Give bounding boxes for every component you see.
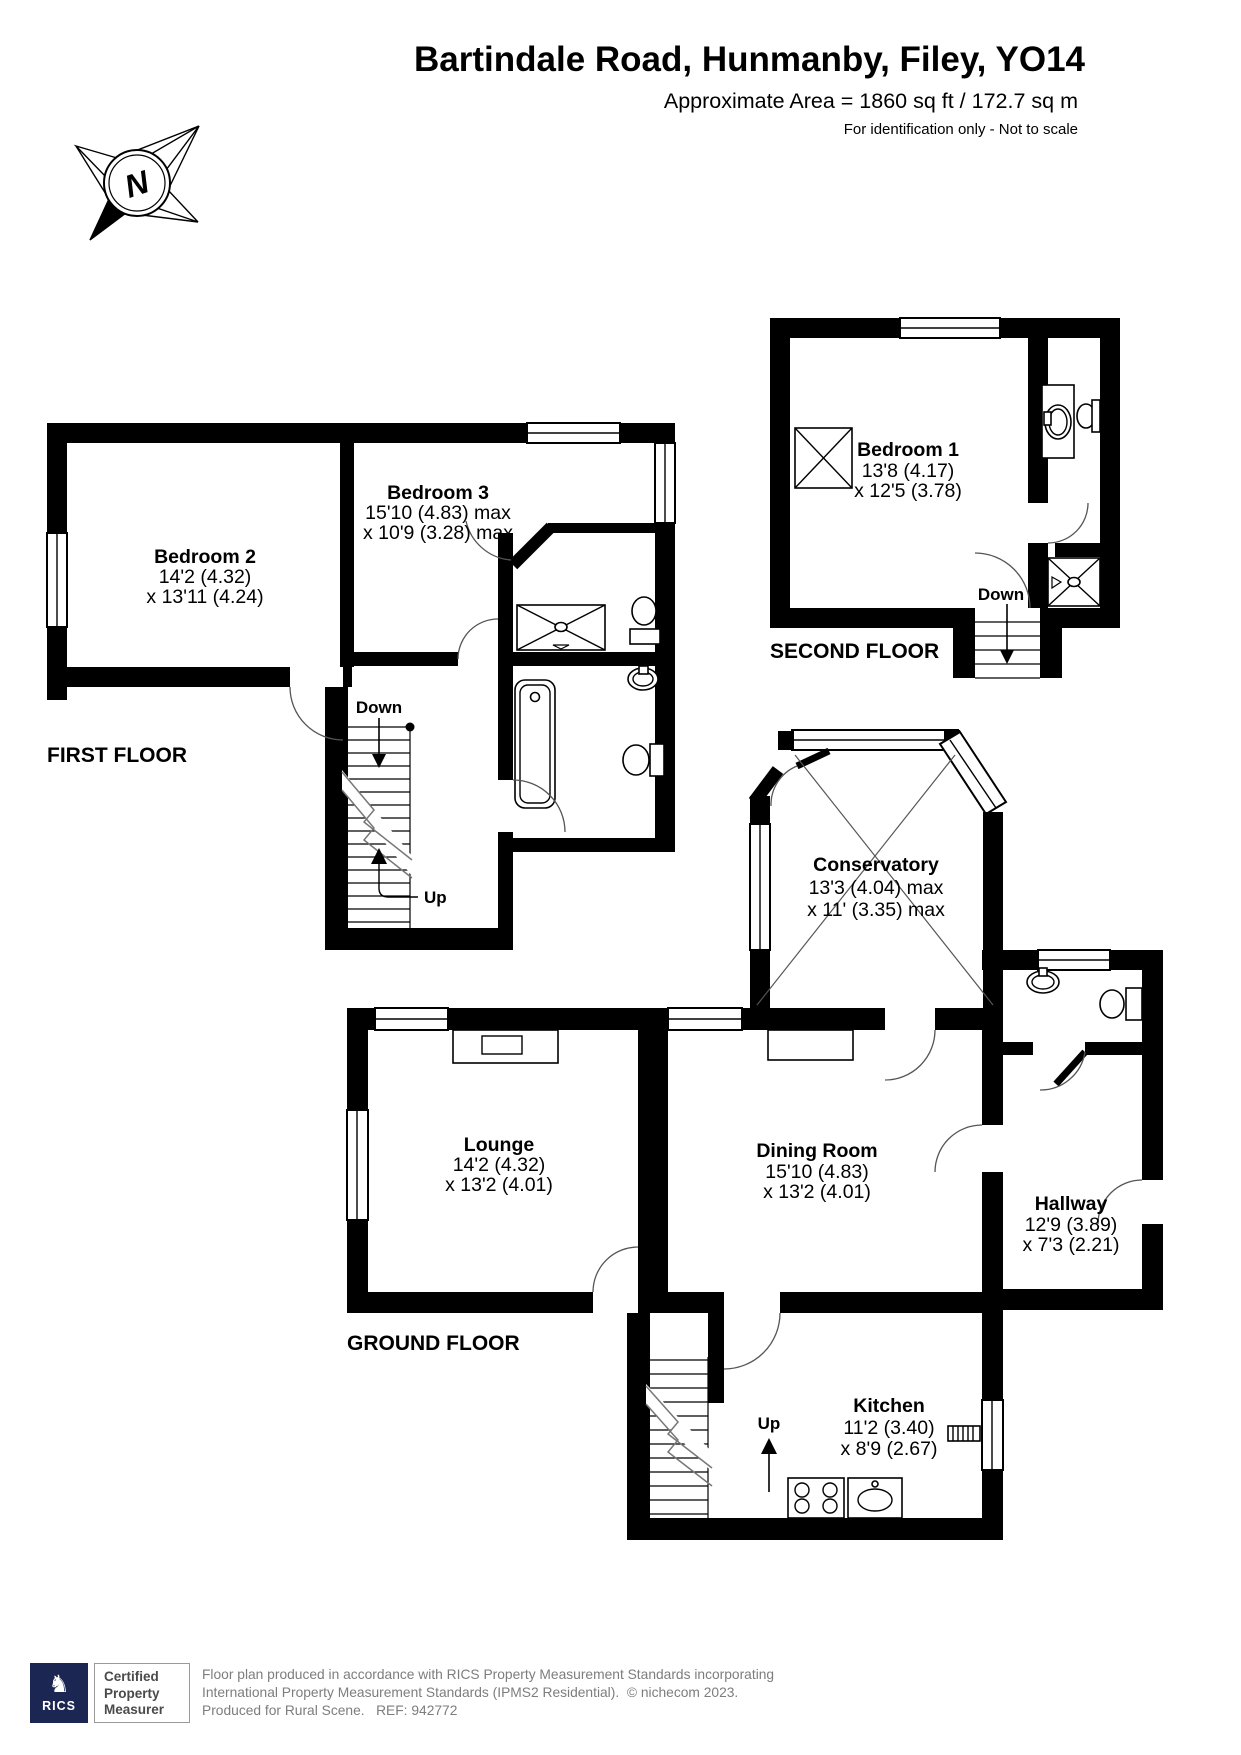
bathroom-sink-icon-2: [628, 666, 658, 690]
first-floor-label: FIRST FLOOR: [47, 744, 187, 767]
room-dim2-lounge: x 13'2 (4.01): [445, 1174, 553, 1196]
skylight-icon: [795, 428, 852, 488]
floorplan-canvas: N: [0, 0, 1241, 1755]
bath-icon: [515, 680, 555, 808]
room-dim2-hallway: x 7'3 (2.21): [1023, 1234, 1120, 1256]
bathroom-sink-icon: [1042, 385, 1074, 458]
room-dim2-kitchen: x 8'9 (2.67): [841, 1438, 938, 1460]
room-dim1-bedroom-2: 14'2 (4.32): [159, 566, 252, 588]
dining-fireplace-icon: [768, 1030, 853, 1060]
room-label-lounge: Lounge: [464, 1134, 535, 1156]
kitchen-radiator-icon: [948, 1426, 980, 1441]
footer-disclaimer-text: Floor plan produced in accordance with R…: [202, 1666, 774, 1720]
room-label-hallway: Hallway: [1035, 1193, 1108, 1215]
room-label-dining-room: Dining Room: [756, 1140, 877, 1162]
toilet-icon: [1077, 400, 1100, 432]
room-label-conservatory: Conservatory: [813, 854, 939, 876]
room-dim1-conservatory: 13'3 (4.04) max: [809, 877, 944, 899]
certified-property-measurer-badge: Certified Property Measurer: [94, 1663, 190, 1723]
footer-line-3: Produced for Rural Scene. REF: 942772: [202, 1702, 774, 1720]
room-dim2-dining-room: x 13'2 (4.01): [763, 1181, 871, 1203]
room-dim1-lounge: 14'2 (4.32): [453, 1154, 546, 1176]
kitchen-sink-icon: [848, 1478, 902, 1518]
rics-lion-icon: ♞: [48, 1673, 70, 1697]
compass-rose-icon: N: [76, 126, 199, 240]
bathroom-toilet-icon: [623, 744, 664, 776]
wc-toilet-icon: [1100, 988, 1142, 1020]
ground-floor-label: GROUND FLOOR: [347, 1332, 520, 1355]
room-dim1-hallway: 12'9 (3.89): [1025, 1214, 1118, 1236]
second-floor-plan: Bedroom 1 13'8 (4.17) x 12'5 (3.78) Down…: [770, 318, 1120, 678]
stairs-down-label-second: Down: [978, 585, 1024, 604]
floorplan-page: Bartindale Road, Hunmanby, Filey, YO14 A…: [0, 0, 1241, 1755]
wc-sink-icon: [1027, 968, 1059, 993]
badge-line: Certified: [104, 1669, 189, 1686]
room-dim1-dining-room: 15'10 (4.83): [765, 1161, 868, 1183]
room-dim1-bedroom-1: 13'8 (4.17): [862, 460, 955, 482]
first-floor-plan: Bedroom 2 14'2 (4.32) x 13'11 (4.24) Bed…: [47, 423, 675, 950]
shower-tray-icon: [517, 605, 605, 650]
footer-line-1: Floor plan produced in accordance with R…: [202, 1666, 774, 1684]
room-label-bedroom-2: Bedroom 2: [154, 546, 256, 568]
room-label-bedroom-3: Bedroom 3: [387, 482, 489, 504]
shower-icon: [1048, 558, 1100, 606]
second-floor-windows: [900, 318, 1000, 338]
kitchen-hob-icon: [788, 1478, 844, 1518]
footer-line-2: International Property Measurement Stand…: [202, 1684, 774, 1702]
room-label-bedroom-1: Bedroom 1: [857, 439, 959, 461]
badge-line: Property: [104, 1686, 189, 1703]
room-dim2-bedroom-3: x 10'9 (3.28) max: [363, 522, 513, 544]
ground-floor-plan: Conservatory 13'3 (4.04) max x 11' (3.35…: [347, 730, 1163, 1540]
badge-line: Measurer: [104, 1702, 189, 1719]
stairs-up-label-ground: Up: [758, 1414, 781, 1433]
stairs-first-floor: [342, 718, 418, 928]
second-floor-label: SECOND FLOOR: [770, 640, 939, 663]
room-dim1-bedroom-3: 15'10 (4.83) max: [365, 502, 511, 524]
room-dim2-bedroom-2: x 13'11 (4.24): [146, 586, 263, 608]
lounge-fireplace-icon: [453, 1030, 558, 1063]
rics-logo: ♞ RICS: [30, 1663, 88, 1723]
stairs-down: [975, 604, 1040, 678]
room-dim1-kitchen: 11'2 (3.40): [843, 1417, 934, 1439]
stairs-up-label-first: Up: [424, 888, 447, 907]
first-floor-walls: [47, 423, 675, 950]
stairs-down-label-first: Down: [356, 698, 402, 717]
room-dim2-bedroom-1: x 12'5 (3.78): [854, 480, 962, 502]
room-label-kitchen: Kitchen: [853, 1395, 925, 1417]
rics-logo-text: RICS: [42, 1699, 76, 1713]
room-dim2-conservatory: x 11' (3.35) max: [807, 899, 945, 921]
